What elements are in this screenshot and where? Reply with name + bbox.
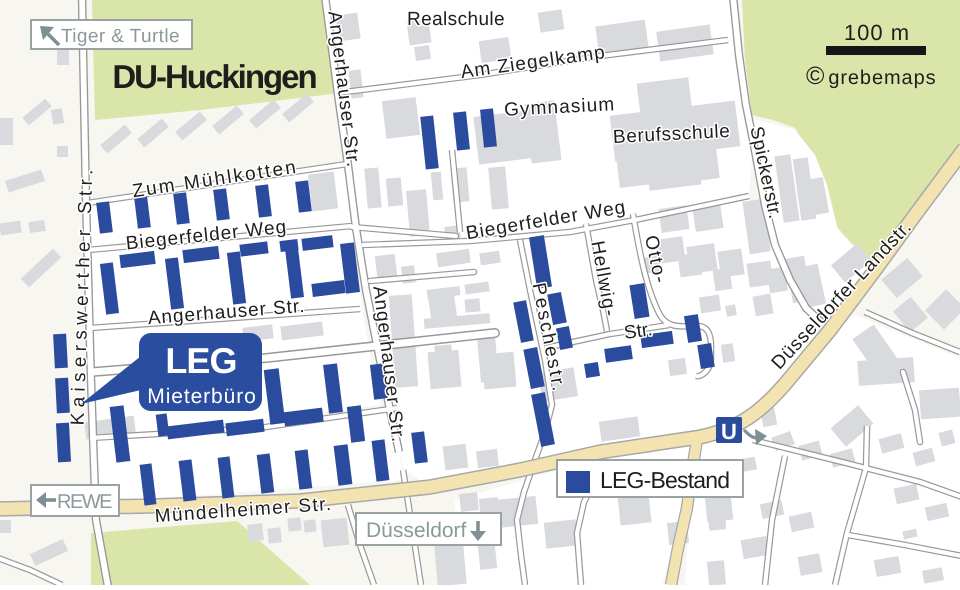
svg-text:Str.: Str. [623, 319, 654, 344]
svg-text:LEG-Bestand: LEG-Bestand [600, 467, 729, 493]
svg-text:LEG: LEG [165, 340, 236, 381]
svg-text:Realschule: Realschule [407, 9, 505, 30]
svg-text:U: U [721, 419, 737, 444]
svg-text:Mieterbüro: Mieterbüro [147, 385, 256, 408]
svg-text:100 m: 100 m [844, 20, 910, 45]
svg-text:Düsseldorf: Düsseldorf [366, 519, 467, 542]
svg-text:DU-Huckingen: DU-Huckingen [112, 58, 316, 95]
svg-text:REWE: REWE [57, 491, 112, 513]
svg-text:Tiger & Turtle: Tiger & Turtle [61, 26, 180, 47]
